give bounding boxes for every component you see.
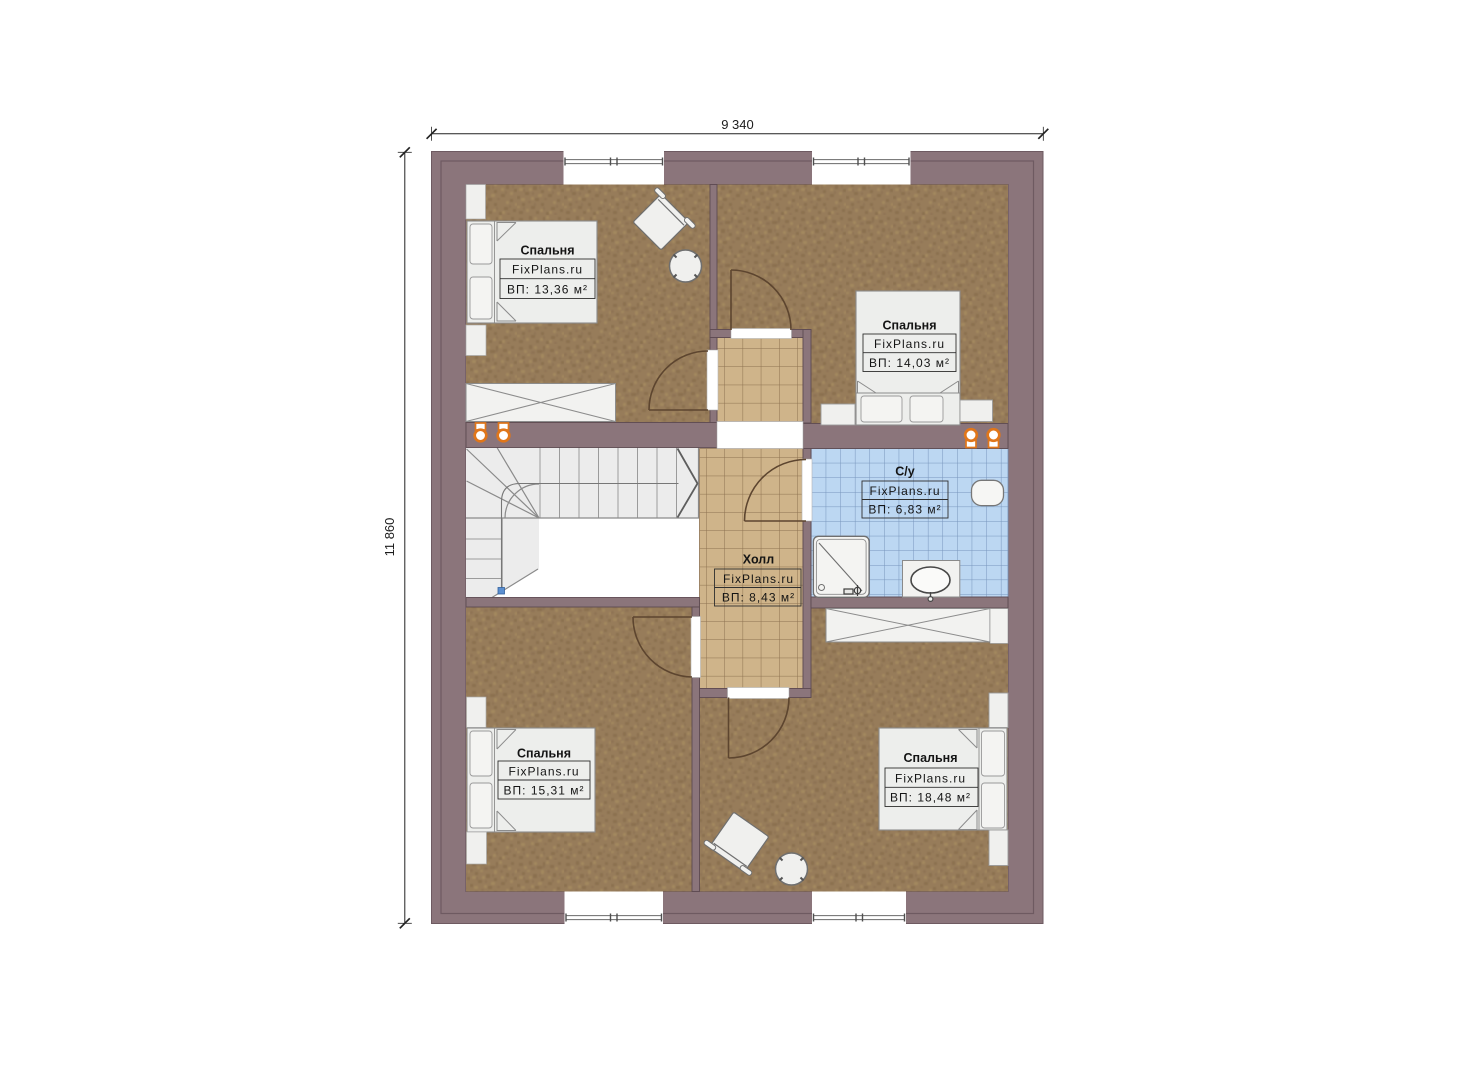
- svg-text:Холл: Холл: [743, 553, 774, 567]
- svg-text:Спальня: Спальня: [904, 751, 958, 765]
- svg-text:FixPlans.ru: FixPlans.ru: [508, 765, 579, 779]
- svg-text:Спальня: Спальня: [517, 747, 571, 761]
- svg-text:ВП: 6,83 м²: ВП: 6,83 м²: [868, 503, 941, 517]
- svg-text:ВП: 13,36 м²: ВП: 13,36 м²: [507, 283, 588, 297]
- svg-text:11 860: 11 860: [382, 518, 397, 557]
- svg-text:FixPlans.ru: FixPlans.ru: [895, 772, 966, 786]
- svg-text:Спальня: Спальня: [521, 244, 575, 258]
- svg-text:Спальня: Спальня: [883, 319, 937, 333]
- svg-text:С/у: С/у: [895, 465, 915, 479]
- svg-text:ВП: 18,48 м²: ВП: 18,48 м²: [890, 791, 971, 805]
- svg-text:FixPlans.ru: FixPlans.ru: [869, 484, 940, 498]
- svg-text:FixPlans.ru: FixPlans.ru: [512, 263, 583, 277]
- svg-text:ВП: 15,31 м²: ВП: 15,31 м²: [504, 784, 585, 798]
- svg-text:FixPlans.ru: FixPlans.ru: [874, 337, 945, 351]
- svg-text:9 340: 9 340: [721, 117, 754, 132]
- svg-text:ВП: 8,43 м²: ВП: 8,43 м²: [722, 591, 795, 605]
- svg-text:ВП: 14,03 м²: ВП: 14,03 м²: [869, 356, 950, 370]
- svg-text:FixPlans.ru: FixPlans.ru: [723, 572, 794, 586]
